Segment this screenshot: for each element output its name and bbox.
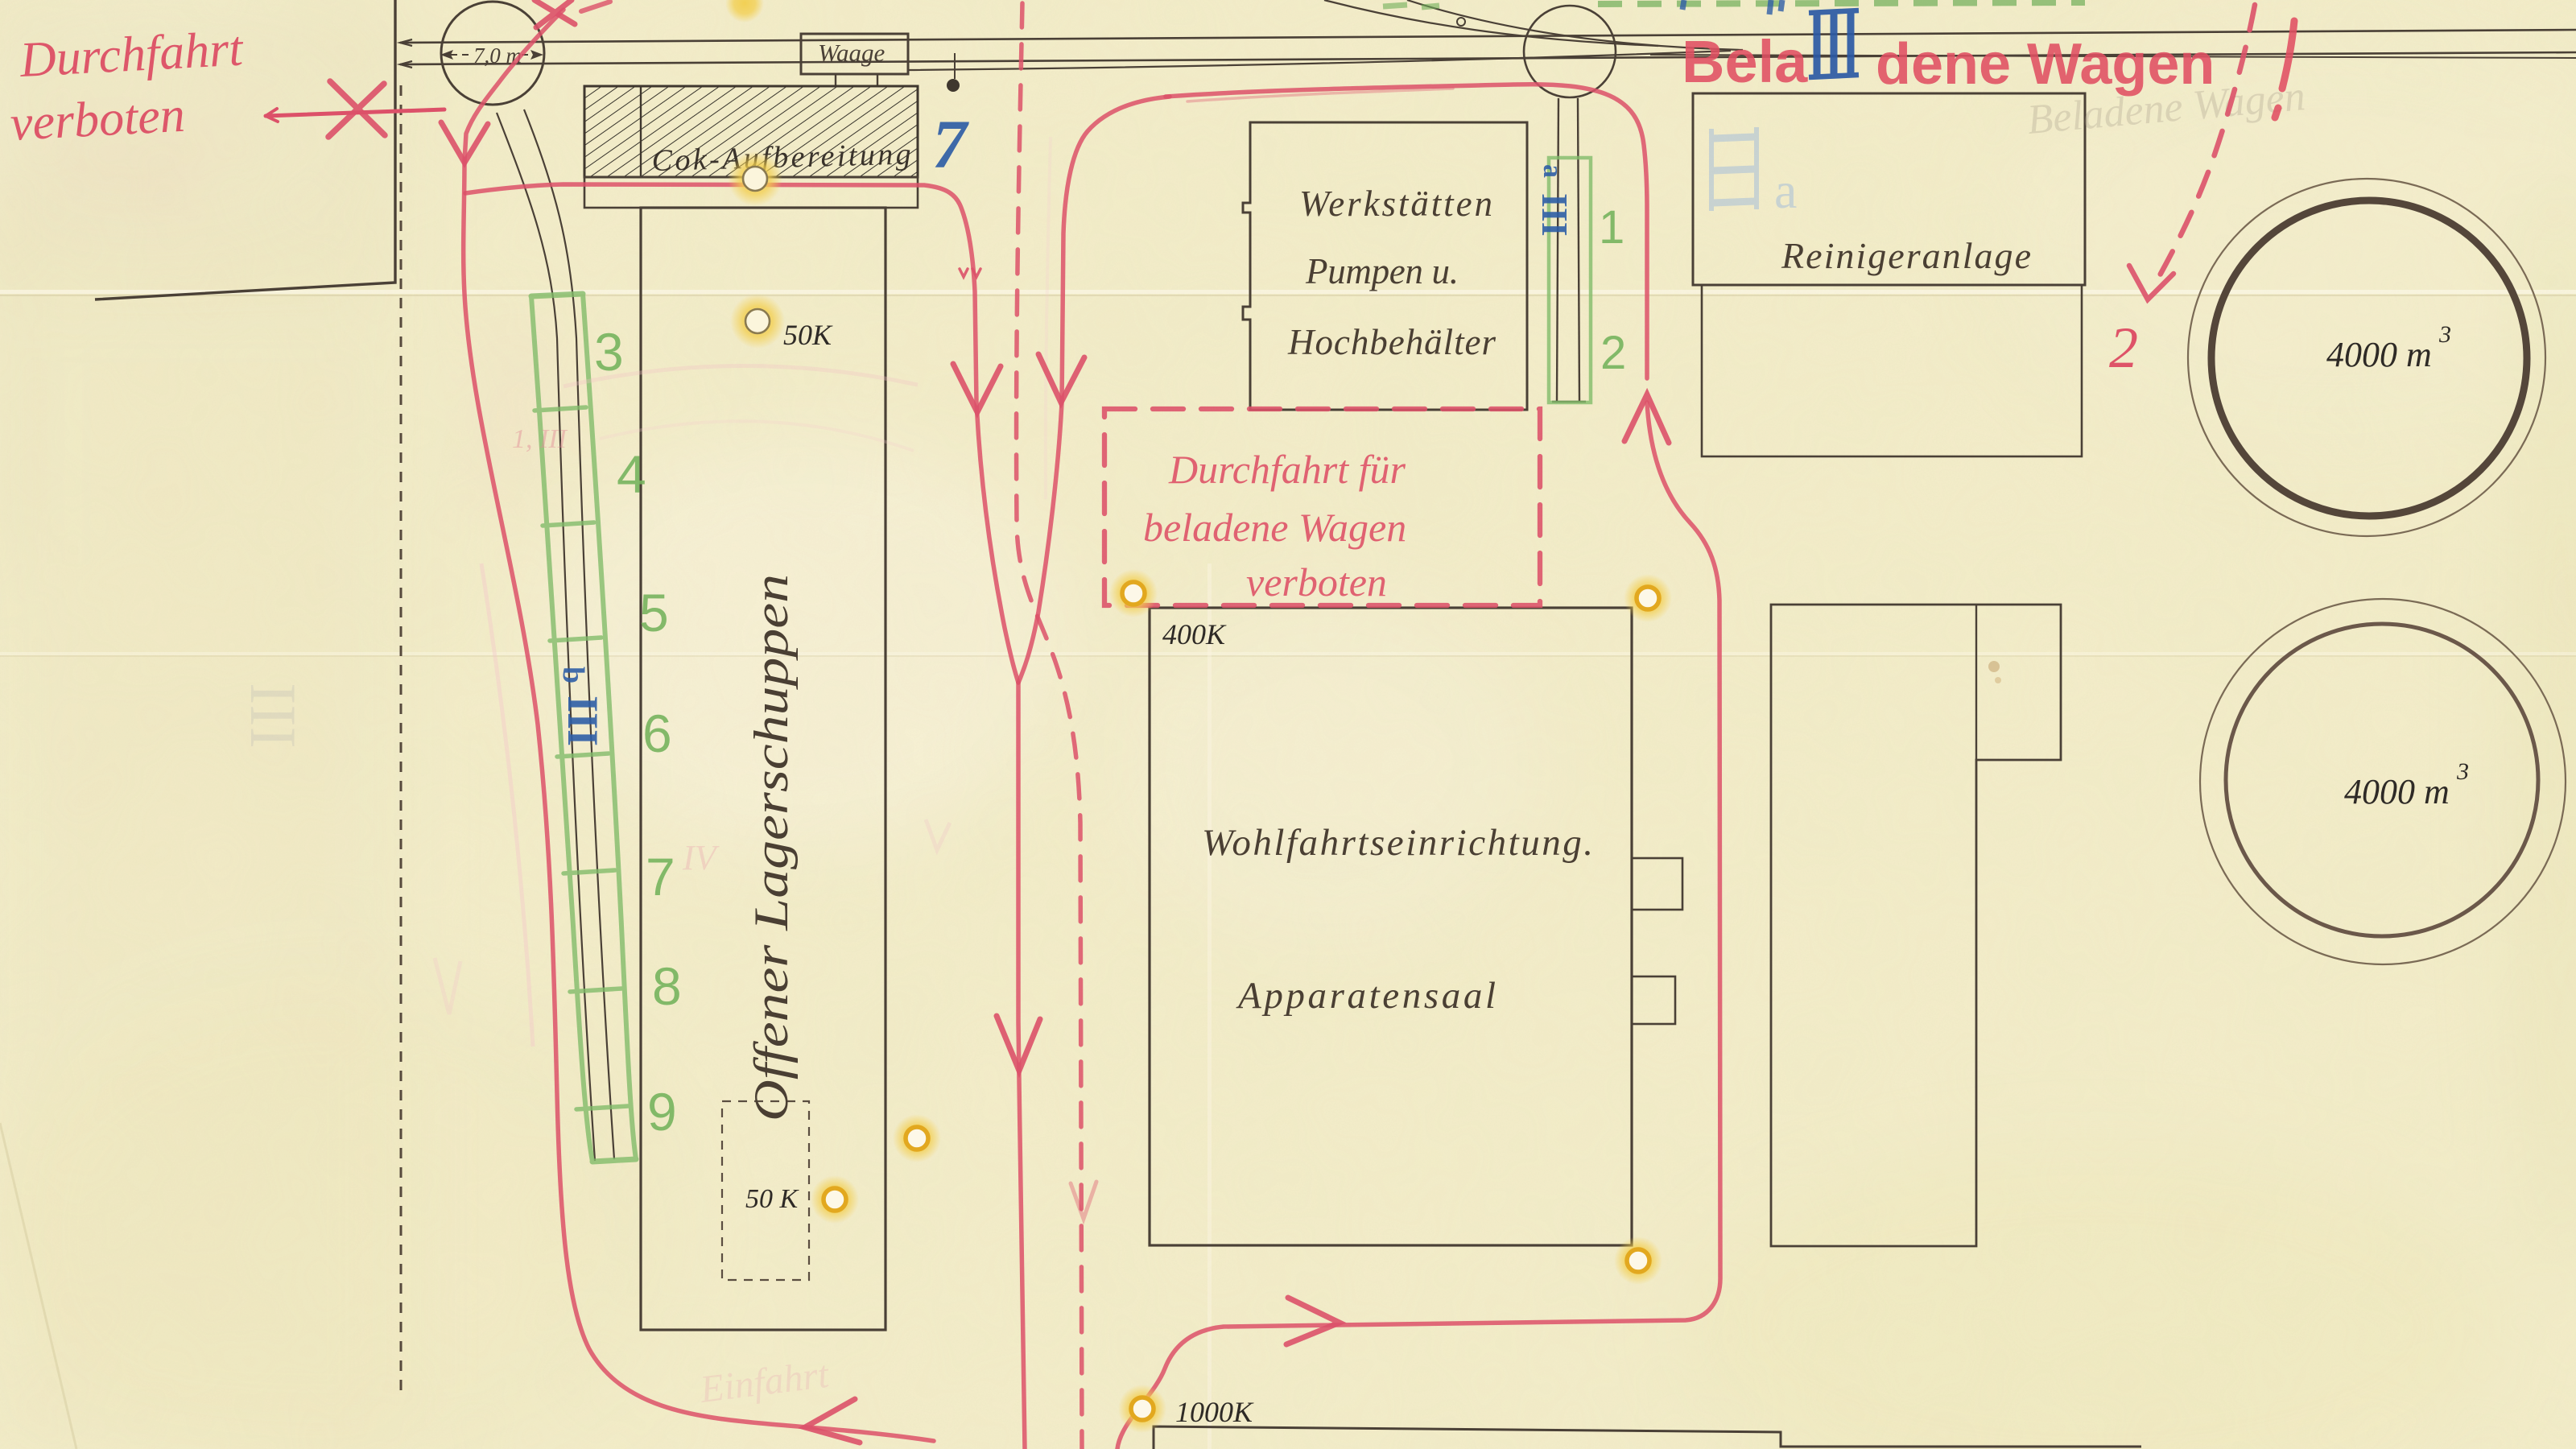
svg-text:4000 m: 4000 m xyxy=(2344,772,2450,811)
svg-text:2: 2 xyxy=(2109,316,2138,380)
svg-text:III: III xyxy=(559,696,607,746)
svg-text:3: 3 xyxy=(594,322,624,382)
svg-text:III: III xyxy=(1534,193,1575,237)
svg-text:Waage: Waage xyxy=(818,39,885,67)
svg-text:beladene Wagen: beladene Wagen xyxy=(1143,505,1406,550)
svg-text:Werkstätten: Werkstätten xyxy=(1299,184,1492,224)
svg-text:6: 6 xyxy=(642,704,672,763)
svg-text:5: 5 xyxy=(639,583,669,642)
svg-text:7: 7 xyxy=(646,847,675,906)
svg-text:50K: 50K xyxy=(783,319,833,351)
svg-text:Durchfahrt für: Durchfahrt für xyxy=(1168,447,1406,492)
svg-text:400K: 400K xyxy=(1162,618,1227,650)
svg-text:Apparatensaal: Apparatensaal xyxy=(1236,975,1496,1017)
svg-text:3: 3 xyxy=(2438,321,2451,348)
svg-text:4: 4 xyxy=(617,444,646,504)
svg-text:Wohlfahrtseinrichtung.: Wohlfahrtseinrichtung. xyxy=(1202,822,1593,864)
svg-text:2: 2 xyxy=(1600,327,1626,379)
svg-text:a: a xyxy=(1774,162,1797,219)
svg-text:Pumpen u.: Pumpen u. xyxy=(1305,251,1459,291)
svg-text:1000K: 1000K xyxy=(1175,1396,1254,1428)
svg-text:Bela: Bela xyxy=(1682,28,1808,95)
svg-text:1, III: 1, III xyxy=(512,424,568,454)
svg-text:III: III xyxy=(237,683,310,749)
svg-text:9: 9 xyxy=(647,1082,677,1141)
svg-text:4000 m: 4000 m xyxy=(2326,335,2432,374)
svg-text:3: 3 xyxy=(2456,758,2469,785)
svg-text:IV: IV xyxy=(682,838,720,877)
svg-text:50 K: 50 K xyxy=(745,1184,800,1214)
svg-text:1: 1 xyxy=(1599,201,1624,254)
svg-text:8: 8 xyxy=(652,956,682,1016)
svg-text:verboten: verboten xyxy=(1246,559,1387,605)
svg-text:7: 7 xyxy=(932,105,969,183)
svg-text:verboten: verboten xyxy=(9,88,186,151)
svg-text:Offener Lagerschuppen: Offener Lagerschuppen xyxy=(745,574,798,1121)
svg-text:a: a xyxy=(1538,164,1567,178)
svg-text:dene Wagen: dene Wagen xyxy=(1876,32,2215,97)
svg-text:Hochbehälter: Hochbehälter xyxy=(1287,322,1496,362)
svg-text:b: b xyxy=(556,667,590,683)
